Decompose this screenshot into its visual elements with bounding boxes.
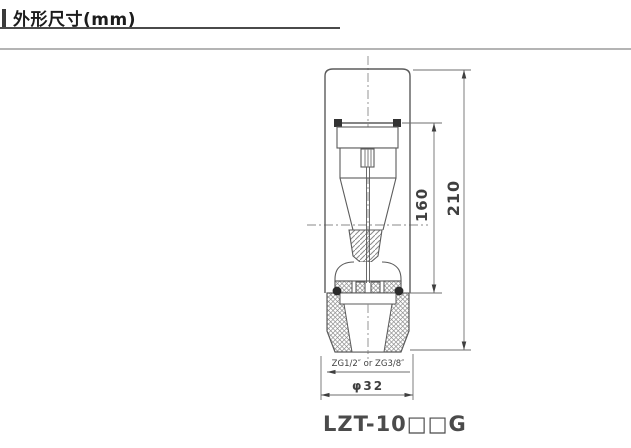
dim-label-diameter: φ32 bbox=[352, 379, 384, 393]
dim-label-thread: ZG1/2″ or ZG3/8″ bbox=[332, 359, 405, 369]
left-seal-ring bbox=[333, 287, 342, 296]
right-cap-seal bbox=[393, 119, 401, 127]
bottom-fitting bbox=[327, 287, 409, 352]
dim-label-160: 160 bbox=[413, 188, 431, 222]
taper-left bbox=[340, 178, 353, 230]
dim-label-210: 210 bbox=[444, 180, 463, 216]
taper-right bbox=[383, 178, 396, 230]
flowmeter-outline-drawing: 160 210 ZG1/2″ or ZG3/8″ φ32 bbox=[0, 0, 631, 448]
left-cap-seal bbox=[334, 119, 342, 127]
datasheet-page: 外形尺寸(mm) bbox=[0, 0, 631, 448]
right-seal-ring bbox=[395, 287, 404, 296]
float bbox=[349, 230, 382, 262]
dimension-160: 160 bbox=[402, 123, 442, 293]
valve-seat bbox=[335, 262, 401, 293]
model-number-label: LZT-10□□G bbox=[323, 412, 467, 436]
ribbed-stem bbox=[361, 149, 374, 167]
dimension-thread: ZG1/2″ or ZG3/8″ bbox=[327, 359, 410, 374]
inner-assembly bbox=[334, 119, 401, 230]
